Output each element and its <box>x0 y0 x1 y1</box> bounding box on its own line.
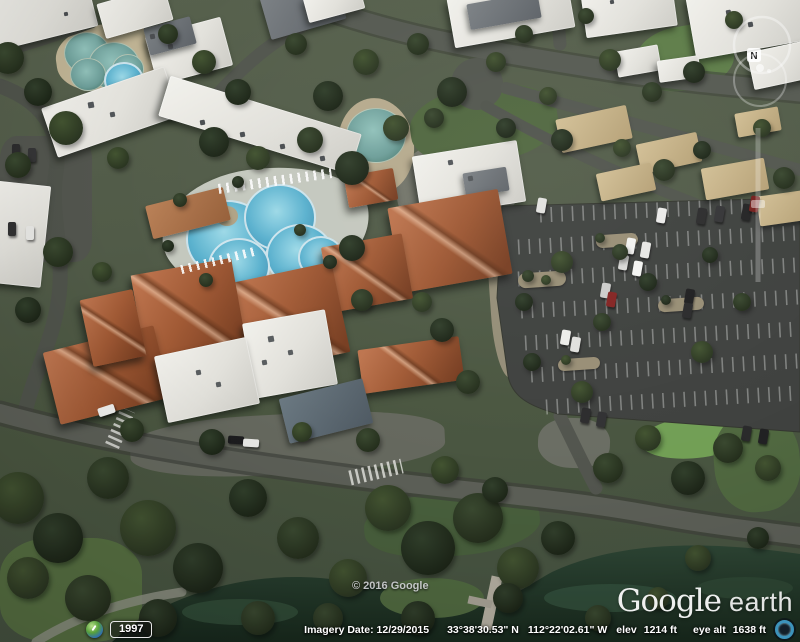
tree-canopy <box>120 500 176 556</box>
rooftop-unit <box>448 160 454 166</box>
watermark-brand: Google <box>617 583 721 619</box>
tree-canopy <box>593 313 611 331</box>
tree-canopy <box>635 425 661 451</box>
tree-canopy <box>612 244 628 260</box>
tree-canopy <box>292 422 312 442</box>
copyright-text: © 2016 Google <box>352 580 429 592</box>
tree-canopy <box>33 513 83 563</box>
time-control[interactable]: 1997 <box>86 621 152 638</box>
tree-canopy <box>65 575 111 621</box>
tree-canopy <box>323 255 337 269</box>
tree-canopy <box>277 517 319 559</box>
tree-canopy <box>578 8 594 24</box>
tree-canopy <box>685 545 711 571</box>
tree-canopy <box>49 111 83 145</box>
tree-canopy <box>313 81 343 111</box>
waterpark-lagoon <box>70 58 106 91</box>
tree-canopy <box>593 453 623 483</box>
rooftop-unit <box>610 0 615 4</box>
tree-canopy <box>199 429 225 455</box>
tree-canopy <box>7 557 49 599</box>
tree-canopy <box>15 297 41 323</box>
tree-canopy <box>599 49 621 71</box>
tree-canopy <box>199 273 213 287</box>
tree-canopy <box>515 293 533 311</box>
earth-viewport[interactable]: N © 2016 Google Google earth 1997 Imager… <box>0 0 800 642</box>
tree-canopy <box>294 224 306 236</box>
historical-imagery-clock-icon[interactable] <box>86 621 103 638</box>
move-joystick-ring-icon[interactable] <box>734 54 786 106</box>
rooftop-unit <box>64 12 69 17</box>
rooftop-unit <box>200 120 206 126</box>
tree-canopy <box>613 139 631 157</box>
tree-canopy <box>515 25 533 43</box>
tree-canopy <box>173 543 223 593</box>
tree-canopy <box>639 273 657 291</box>
tree-canopy <box>661 295 671 305</box>
tree-canopy <box>356 428 380 452</box>
tree-canopy <box>120 418 144 442</box>
rooftop-unit <box>288 350 294 356</box>
rooftop-unit <box>196 370 202 376</box>
rooftop-unit <box>168 44 174 50</box>
car <box>8 222 16 236</box>
tree-canopy <box>285 33 307 55</box>
tree-canopy <box>5 152 31 178</box>
tree-canopy <box>496 118 516 138</box>
google-earth-watermark: Google earth <box>617 583 793 619</box>
tree-canopy <box>493 583 523 613</box>
tree-canopy <box>383 115 409 141</box>
tree-canopy <box>339 235 365 261</box>
tree-canopy <box>747 527 769 549</box>
tree-canopy <box>297 127 323 153</box>
rooftop-unit <box>88 102 95 109</box>
imagery-date: Imagery Date: 12/29/2015 <box>304 624 429 636</box>
rooftop-unit <box>110 112 116 118</box>
longitude: 112°22'02.61" W <box>528 624 607 636</box>
zoom-slider-handle[interactable] <box>751 200 765 208</box>
tree-canopy <box>595 233 605 243</box>
rooftop-unit <box>240 132 246 138</box>
elev-label: elev <box>616 624 636 636</box>
tree-canopy <box>541 275 551 285</box>
rooftop-unit <box>320 156 326 162</box>
tree-canopy <box>523 353 541 371</box>
tree-canopy <box>539 87 557 105</box>
eye-altitude-value: 1638 ft <box>733 624 766 636</box>
tree-canopy <box>551 251 573 273</box>
tree-canopy <box>173 193 187 207</box>
tree-canopy <box>87 457 129 499</box>
tree-canopy <box>335 151 369 185</box>
tree-canopy <box>691 341 713 363</box>
tree-canopy <box>424 108 444 128</box>
tree-canopy <box>232 176 244 188</box>
tree-canopy <box>486 52 506 72</box>
tree-canopy <box>541 521 575 555</box>
tree-canopy <box>456 370 480 394</box>
rooftop-unit <box>216 382 222 388</box>
tree-canopy <box>225 79 251 105</box>
tree-canopy <box>92 262 112 282</box>
car <box>228 435 245 444</box>
tree-canopy <box>192 50 216 74</box>
tree-canopy <box>551 129 573 151</box>
rooftop-unit <box>262 360 268 366</box>
rooftop-unit <box>150 34 156 40</box>
watermark-product: earth <box>729 587 793 618</box>
tree-canopy <box>162 240 174 252</box>
tree-canopy <box>107 147 129 169</box>
tree-canopy <box>571 381 593 403</box>
tree-canopy <box>713 433 743 463</box>
aerial-imagery <box>0 0 800 642</box>
tree-canopy <box>561 355 571 365</box>
rooftop-unit <box>280 144 286 150</box>
tree-canopy <box>24 78 52 106</box>
tree-canopy <box>671 461 705 495</box>
tree-canopy <box>241 601 275 635</box>
latitude: 33°38'30.53" N <box>447 624 519 636</box>
tree-canopy <box>365 485 411 531</box>
tree-canopy <box>642 82 662 102</box>
tree-canopy <box>653 159 675 181</box>
rooftop-unit <box>468 176 474 182</box>
tree-canopy <box>158 24 178 44</box>
tree-canopy <box>199 127 229 157</box>
navigation-controls[interactable]: N <box>700 0 800 300</box>
tree-canopy <box>430 318 454 342</box>
eye-alt-label: eye alt <box>693 624 726 636</box>
tree-canopy <box>437 77 467 107</box>
status-bar: Imagery Date: 12/29/2015 33°38'30.53" N … <box>304 620 794 639</box>
tree-canopy <box>482 477 508 503</box>
imagery-year-badge[interactable]: 1997 <box>110 621 152 638</box>
tree-canopy <box>229 479 267 517</box>
tree-canopy <box>43 237 73 267</box>
car <box>243 438 260 447</box>
tree-canopy <box>755 455 781 481</box>
rooftop-unit <box>268 336 275 343</box>
tree-canopy <box>412 292 432 312</box>
car <box>26 226 34 240</box>
zoom-slider[interactable] <box>751 128 765 282</box>
tree-canopy <box>351 289 373 311</box>
tree-canopy <box>353 49 379 75</box>
elevation-value: 1214 ft <box>644 624 677 636</box>
tree-canopy <box>246 146 270 170</box>
streaming-indicator-icon <box>775 620 794 639</box>
tree-canopy <box>522 270 534 282</box>
tree-canopy <box>401 521 455 575</box>
tree-canopy <box>407 33 429 55</box>
tree-canopy <box>431 456 459 484</box>
